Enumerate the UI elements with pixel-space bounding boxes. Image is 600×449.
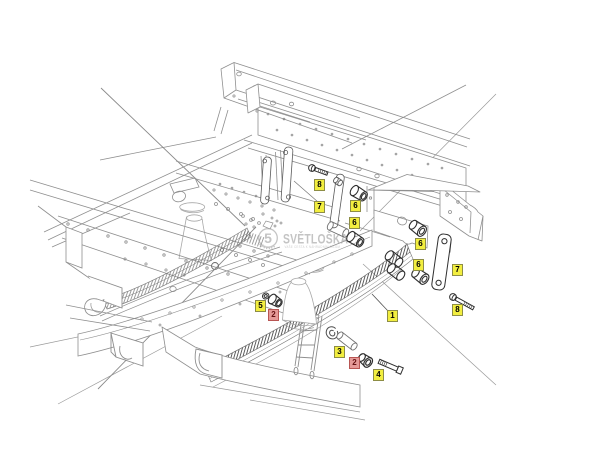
svg-text:VAŠE CESTA K NÁHRADNÍM DÍLŮM: VAŠE CESTA K NÁHRADNÍM DÍLŮM xyxy=(285,244,341,249)
svg-text:5: 5 xyxy=(264,230,272,246)
